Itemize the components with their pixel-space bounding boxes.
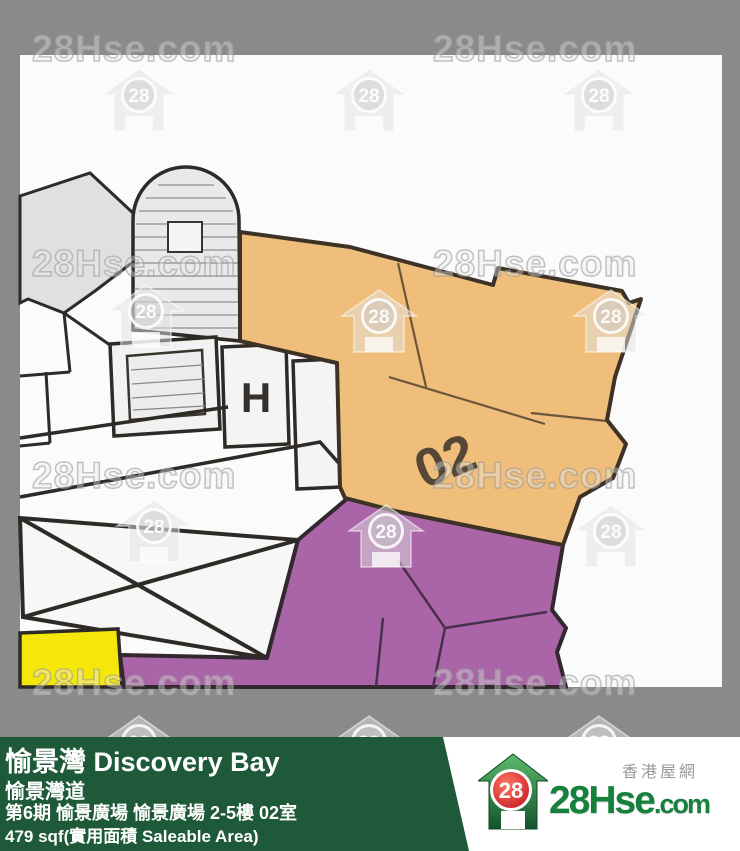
yellow-store-area [20, 629, 122, 687]
brand-house-icon: 28 [478, 752, 548, 832]
staircase-landing [168, 222, 202, 252]
brand-main: 28Hse [549, 779, 654, 823]
lift-h-label: H [241, 374, 271, 421]
estate-title: 愉景灣 Discovery Bay [5, 740, 280, 779]
brand-house-number: 28 [499, 778, 523, 803]
brand-logo-text: 28Hse .com [549, 779, 709, 823]
screenshot-root: H 02 [0, 0, 740, 851]
brand-suffix: .com [654, 789, 709, 820]
brand-tagline: 香港屋網 [622, 758, 698, 782]
lobby-room [293, 359, 341, 489]
saleable-area: 479 sqf(實用面積 Saleable Area) [5, 822, 259, 847]
floor-plan-image: H 02 [0, 0, 740, 851]
